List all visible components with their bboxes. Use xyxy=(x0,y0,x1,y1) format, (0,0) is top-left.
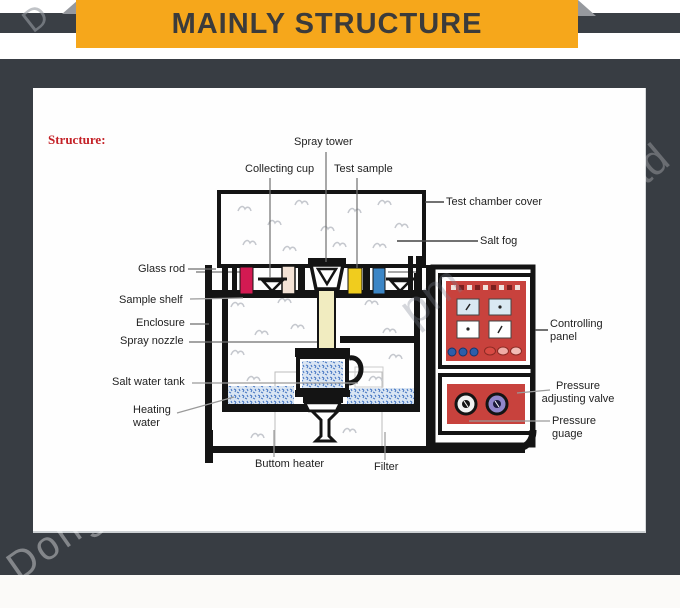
ribbon-fold-right xyxy=(578,0,596,16)
page-title: MAINLY STRUCTURE xyxy=(172,8,483,41)
label-glass-rod: Glass rod xyxy=(138,263,185,276)
title-banner: MAINLY STRUCTURE xyxy=(76,0,578,48)
control-tower-shape xyxy=(433,267,533,445)
label-spray-nozzle: Spray nozzle xyxy=(120,335,184,348)
diagram-heading: Structure: xyxy=(48,132,106,148)
label-enclosure: Enclosure xyxy=(136,317,185,330)
spray-column xyxy=(318,290,335,352)
label-spray-tower: Spray tower xyxy=(294,136,353,149)
label-buttom-heater: Buttom heater xyxy=(255,458,324,471)
page: MAINLY STRUCTURE xyxy=(0,0,680,608)
label-pressure-guage: Pressure guage xyxy=(552,415,608,441)
test-sample-yellow xyxy=(348,268,362,294)
salt-water-right xyxy=(347,388,414,404)
panel-label-row xyxy=(451,285,520,290)
test-sample-blue xyxy=(373,268,385,294)
filter-shape xyxy=(312,411,338,441)
label-pressure-adjusting-valve: Pressure adjusting valve xyxy=(537,380,619,406)
label-sample-shelf: Sample shelf xyxy=(119,294,183,307)
label-filter: Filter xyxy=(374,461,398,474)
salt-spray-chamber-diagram xyxy=(33,88,645,531)
bottom-strip xyxy=(0,575,680,608)
label-collecting-cup: Collecting cup xyxy=(245,163,314,176)
label-heating-water: Heating water xyxy=(133,404,181,430)
label-test-chamber-cover: Test chamber cover xyxy=(446,196,542,209)
salt-water-left xyxy=(228,386,294,404)
pressure-guage-knob xyxy=(487,394,507,414)
label-test-sample: Test sample xyxy=(334,163,393,176)
label-salt-fog: Salt fog xyxy=(480,235,517,248)
test-sample-red xyxy=(240,267,253,294)
label-salt-water-tank: Salt water tank xyxy=(112,376,185,389)
label-controlling-panel: Controlling panel xyxy=(550,318,614,344)
pressure-adjusting-valve-knob xyxy=(456,394,476,414)
